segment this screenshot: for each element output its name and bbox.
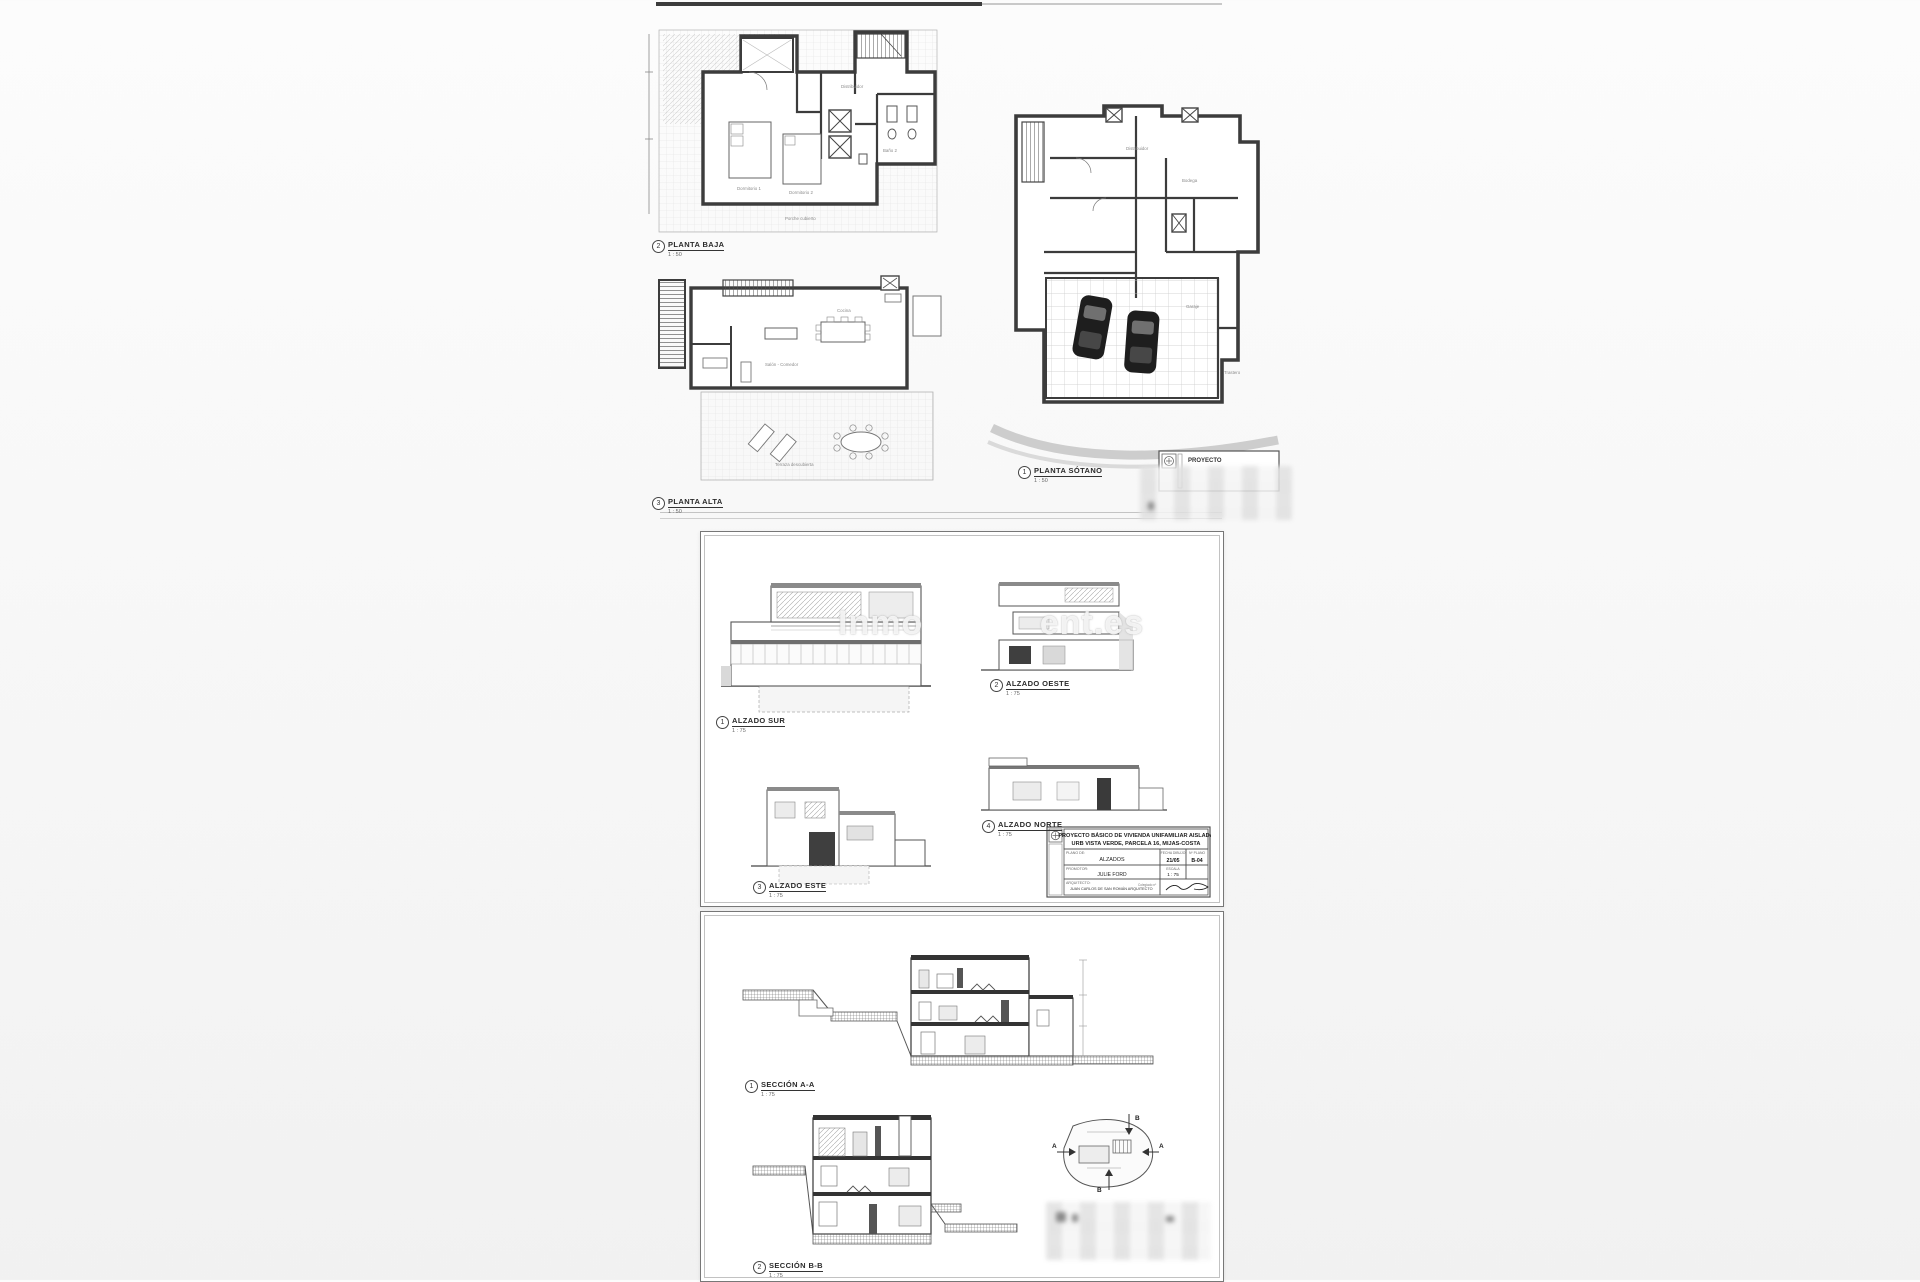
figlabel-number: 3 [753,881,766,894]
figlabel-scale: 1 : 50 [668,252,724,258]
room-label: Porche cubierto [785,216,816,221]
figlabel-planta-baja: 2 PLANTA BAJA 1 : 50 [652,240,724,258]
figlabel-seccion-aa: 1 SECCIÓN A-A 1 : 75 [745,1080,815,1098]
seccion-a-drawing [739,940,1159,1085]
planta-baja-drawing: Distribuidor Dormitorio 1 Dormitorio 2 B… [645,14,950,238]
titleblock-plano-value: ALZADOS [1099,857,1125,863]
figlabel-number: 2 [990,679,1003,692]
site-key-mark-a-right: A [1159,1143,1164,1150]
figlabel-scale: 1 : 50 [1034,478,1102,484]
figlabel-number: 4 [982,820,995,833]
room-label: Salón - Comedor [765,362,799,367]
room-label: Trastero [1224,370,1241,375]
scan-edge-line [656,2,982,6]
titleblock-promotor-label: PROMOTOR: [1066,867,1088,871]
figlabel-number: 2 [753,1261,766,1274]
figlabel-scale: 1 : 75 [769,893,826,899]
architectural-plans-page: Distribuidor Dormitorio 1 Dormitorio 2 B… [0,0,1920,1280]
titleblock-promotor-value: JULIE FORD [1097,872,1127,878]
figlabel-scale: 1 : 50 [668,509,723,515]
room-label: Garaje [1186,304,1200,309]
figlabel-title: SECCIÓN A-A [761,1080,815,1091]
blurred-logo-patch-top [1140,466,1292,520]
figlabel-number: 1 [745,1080,758,1093]
figlabel-alzado-sur: 1 ALZADO SUR 1 : 75 [716,716,785,734]
room-label: Bodega [1182,178,1198,183]
room-label: Terraza descubierta [775,462,814,467]
site-key-drawing: B B A A [1051,1110,1166,1195]
alzado-norte-drawing [979,740,1169,825]
titleblock-plano-label: PLANO DE: [1066,851,1085,855]
figlabel-number: 1 [716,716,729,729]
figlabel-number: 1 [1018,466,1031,479]
sheet-divider-line [660,512,1222,519]
figlabel-title: PLANTA BAJA [668,240,724,251]
alzado-oeste-drawing [979,572,1134,687]
figlabel-alzado-norte: 4 ALZADO NORTE 1 : 75 [982,820,1062,838]
titleblock: PROYECTO BÁSICO DE VIVIENDA UNIFAMILIAR … [1046,826,1211,898]
titleblock-num-value: B-04 [1191,858,1202,864]
titleblock-fecha-label: FECHA DIBUJO [1161,851,1186,855]
figlabel-title: SECCIÓN B-B [769,1261,823,1272]
titleblock-num-label: Nº PLANO [1189,851,1205,855]
figlabel-alzado-oeste: 2 ALZADO OESTE 1 : 75 [990,679,1070,697]
scan-edge-line-light [982,3,1222,5]
room-label: Cocina [837,308,851,313]
room-label: Distribuidor [1126,146,1149,151]
alzado-sur-drawing [719,566,934,721]
figlabel-scale: 1 : 75 [1006,691,1070,697]
site-key-mark-a-left: A [1052,1143,1057,1150]
site-key-mark-b-bottom: B [1097,1187,1102,1194]
figlabel-title: ALZADO SUR [732,716,785,727]
figlabel-scale: 1 : 75 [998,832,1062,838]
titleblock-escala-value: 1 : 75 [1167,872,1179,877]
titleblock-title-line2: URB VISTA VERDE, PARCELA 16, MIJAS-COSTA [1072,841,1201,847]
figlabel-title: ALZADO NORTE [998,820,1062,831]
alzado-este-drawing [749,770,934,890]
planta-alta-drawing: Salón - Comedor Cocina Terraza descubier… [645,266,950,494]
titleblock-arquitecto-value: JUAN CARLOS DE SAN ROMÁN ARQUITECTO [1070,887,1153,891]
planta-sotano-drawing: Distribuidor Garaje Bodega Trastero [986,98,1282,474]
titleblock-arquitecto-label: ARQUITECTO: [1066,881,1091,885]
figlabel-number: 3 [652,497,665,510]
room-label: Baño 2 [883,148,897,153]
titleblock-escala-label: ESCALA [1166,867,1180,871]
figlabel-scale: 1 : 75 [769,1273,823,1279]
room-label: Dormitorio 1 [737,186,761,191]
titleblock-colegiado-label: Colegiado nº [1138,883,1157,887]
figlabel-title: PLANTA ALTA [668,497,723,508]
room-label: Dormitorio 2 [789,190,813,195]
titleblock-fecha-value: 21/05 [1167,858,1180,864]
seccion-b-drawing [749,1104,1024,1264]
figlabel-number: 2 [652,240,665,253]
titleblock-title-line1: PROYECTO BÁSICO DE VIVIENDA UNIFAMILIAR … [1058,832,1211,839]
figlabel-scale: 1 : 75 [761,1092,815,1098]
site-key-mark-b-top: B [1135,1115,1140,1122]
figlabel-title: ALZADO ESTE [769,881,826,892]
figlabel-title: ALZADO OESTE [1006,679,1070,690]
blurred-logo-patch-bottom [1046,1202,1211,1260]
figlabel-planta-alta: 3 PLANTA ALTA 1 : 50 [652,497,723,515]
room-label: Distribuidor [841,84,864,89]
figlabel-seccion-bb: 2 SECCIÓN B-B 1 : 75 [753,1261,823,1279]
figlabel-planta-sotano: 1 PLANTA SÓTANO 1 : 50 [1018,466,1102,484]
figlabel-scale: 1 : 75 [732,728,785,734]
partial-titleblock-text: PROYECTO [1188,458,1222,464]
figlabel-alzado-este: 3 ALZADO ESTE 1 : 75 [753,881,826,899]
figlabel-title: PLANTA SÓTANO [1034,466,1102,477]
